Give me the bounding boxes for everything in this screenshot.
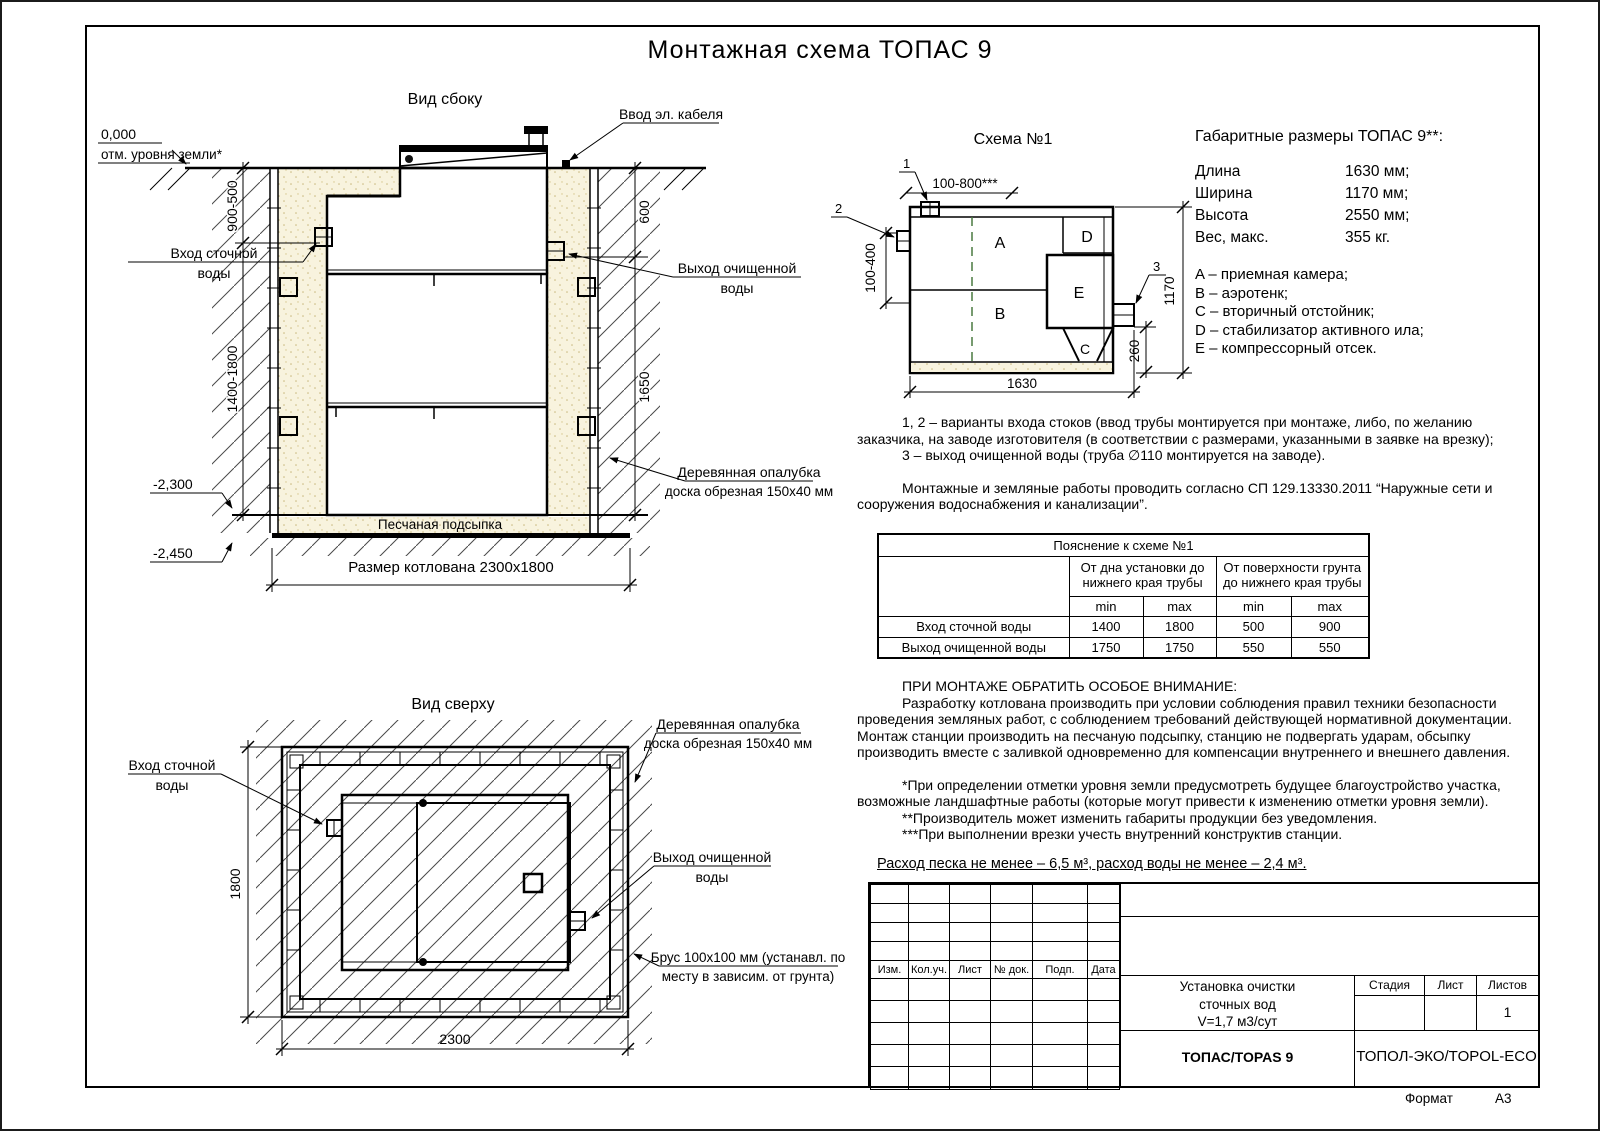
spec-row: Высота2550 мм; bbox=[1195, 207, 1409, 229]
company-name: ТОПОЛ-ЭКО/TOPOL-ECO bbox=[1355, 1031, 1538, 1087]
pit-size-label: Размер котлована 2300х1800 bbox=[348, 559, 553, 576]
cable-label: Ввод эл. кабеля bbox=[619, 106, 723, 122]
dim-2300: 2300 bbox=[439, 1031, 470, 1047]
spec-row: Вес, макс.355 кг. bbox=[1195, 229, 1409, 251]
dim-600: 600 bbox=[636, 200, 652, 224]
partition-thick bbox=[327, 274, 547, 407]
drawing-sheet: { "sheet": { "title": "Монтажная схема Т… bbox=[0, 0, 1600, 1131]
formwork-label-2: доска обрезная 150х40 мм bbox=[644, 736, 812, 751]
revision-header-row: Изм. Кол.уч. Лист № док. Подп. Дата bbox=[871, 961, 1120, 979]
hinge-dot bbox=[419, 958, 427, 966]
ground-hatch-bottom bbox=[250, 538, 650, 556]
outlet-label-2: воды bbox=[721, 280, 754, 296]
consumption-note: Расход песка не менее – 6,5 м³, расход в… bbox=[877, 856, 1306, 872]
sand-backfill-right bbox=[547, 168, 590, 515]
sand-bed-label: Песчаная подсыпка bbox=[378, 517, 503, 532]
stage-value bbox=[1355, 996, 1425, 1030]
chamber-c-label: C bbox=[1080, 341, 1090, 357]
attention-heading: ПРИ МОНТАЖЕ ОБРАТИТЬ ОСОБОЕ ВНИМАНИЕ: bbox=[857, 678, 1535, 695]
model-name: ТОПАС/TOPAS 9 bbox=[1121, 1031, 1355, 1087]
top-view: Вид сверху Вход сточной воды Деревянная … bbox=[128, 696, 845, 1056]
stage-table: Стадия Лист Листов 1 bbox=[1355, 976, 1538, 1030]
attention-body: Разработку котлована производить при усл… bbox=[857, 695, 1535, 761]
legend-item: B – аэротенк; bbox=[1195, 285, 1424, 304]
outlet-label-1: Выход очищенной bbox=[678, 260, 797, 276]
sheets-label: Листов bbox=[1477, 976, 1538, 995]
cable-leader bbox=[570, 123, 623, 160]
legend-item: A – приемная камера; bbox=[1195, 266, 1424, 285]
outlet-label-1: Выход очищенной bbox=[653, 849, 772, 865]
dim-1170: 1170 bbox=[1162, 276, 1177, 305]
table-group-1: От дна установки до нижнего края трубы bbox=[1069, 556, 1216, 596]
formwork-label-2: доска обрезная 150х40 мм bbox=[665, 484, 833, 499]
chamber-d-label: D bbox=[1081, 229, 1093, 246]
ground-level-label: отм. уровня земли* bbox=[101, 147, 223, 162]
revision-grid: Изм. Кол.уч. Лист № док. Подп. Дата bbox=[870, 884, 1120, 1090]
dim-900-500: 900-500 bbox=[224, 180, 240, 232]
chamber-legend: A – приемная камера; B – аэротенк; C – в… bbox=[1195, 266, 1424, 359]
schema-bottom-band bbox=[911, 363, 1112, 372]
ground-hatch-left bbox=[212, 168, 270, 533]
note-variants-12: 1, 2 – варианты входа стоков (ввод трубы… bbox=[857, 414, 1533, 447]
table-row: Вход сточной воды 1400 1800 500 900 bbox=[878, 616, 1369, 637]
schema-title: Схема №1 bbox=[974, 131, 1053, 148]
lid-top-band bbox=[400, 146, 547, 152]
stamp-empty-row bbox=[1121, 917, 1539, 976]
hinge-dot bbox=[419, 799, 427, 807]
chamber-b-label: B bbox=[995, 306, 1006, 323]
title-block: Изм. Кол.уч. Лист № док. Подп. Дата Уста… bbox=[868, 882, 1540, 1088]
product-title: Установка очистки сточных вод V=1,7 м3/с… bbox=[1121, 976, 1355, 1030]
explanation-table: Пояснение к схеме №1 От дна установки до… bbox=[877, 533, 1370, 659]
dim-260: 260 bbox=[1127, 340, 1142, 363]
top-view-title: Вид сверху bbox=[411, 696, 494, 713]
footnote-2: **Производитель может изменить габариты … bbox=[857, 810, 1535, 827]
table-row: Выход очищенной воды 1750 1750 550 550 bbox=[878, 637, 1369, 658]
level-2450-label: -2,450 bbox=[153, 545, 193, 561]
vent-cap bbox=[524, 126, 548, 134]
zero-mark-label: 0,000 bbox=[101, 126, 136, 142]
note-variant-3: 3 – выход очищенной воды (труба ∅110 мон… bbox=[857, 447, 1533, 464]
format-value: А3 bbox=[1495, 1091, 1512, 1106]
formwork-label-1: Деревянная опалубка bbox=[677, 464, 820, 480]
level-2450-arrow bbox=[222, 543, 232, 562]
legend-item: D – стабилизатор активного ила; bbox=[1195, 322, 1424, 341]
spec-row: Длина1630 мм; bbox=[1195, 163, 1409, 185]
lid-diagonal bbox=[400, 153, 547, 166]
marker2-leader bbox=[847, 217, 894, 237]
marker-1: 1 bbox=[903, 156, 910, 171]
stamp-right-section: Установка очистки сточных вод V=1,7 м3/с… bbox=[1119, 884, 1539, 1087]
specs-heading: Габаритные размеры ТОПАС 9**: bbox=[1195, 128, 1443, 146]
vent-stem bbox=[529, 132, 543, 146]
table-group-2: От поверхности грунта до нижнего края тр… bbox=[1216, 556, 1369, 596]
side-view: Вид сбоку 0,000 отм. уровня земли* 900-5… bbox=[98, 91, 833, 592]
formwork-label-1: Деревянная опалубка bbox=[656, 716, 799, 732]
side-view-title: Вид сбоку bbox=[408, 91, 483, 108]
lid-latch-icon bbox=[405, 155, 413, 163]
attention-block: ПРИ МОНТАЖЕ ОБРАТИТЬ ОСОБОЕ ВНИМАНИЕ: Ра… bbox=[857, 678, 1535, 843]
spec-row: Ширина1170 мм; bbox=[1195, 185, 1409, 207]
chamber-e-label: E bbox=[1074, 285, 1085, 302]
chamber-a-label: A bbox=[995, 235, 1006, 252]
footnote-3: ***При выполнении врезки учесть внутренн… bbox=[857, 826, 1535, 843]
footnote-1: *При определении отметки уровня земли пр… bbox=[857, 777, 1535, 810]
table-title: Пояснение к схеме №1 bbox=[878, 534, 1369, 556]
schema-1: Схема №1 1 2 3 100-800*** 100-400 260 11… bbox=[831, 131, 1192, 398]
dim-100-400: 100-400 bbox=[863, 243, 878, 293]
marker-3: 3 bbox=[1153, 259, 1160, 274]
partition-thin bbox=[327, 270, 547, 403]
sand-backfill-left bbox=[278, 168, 400, 515]
marker3-leader bbox=[1136, 275, 1149, 303]
inlet-label-1: Вход сточной bbox=[129, 757, 216, 773]
dim-1400-1800: 1400-1800 bbox=[224, 345, 240, 412]
sheet-label: Лист bbox=[1425, 976, 1477, 995]
format-label: Формат bbox=[1405, 1091, 1453, 1106]
dim-100-800: 100-800*** bbox=[932, 176, 998, 191]
beam-label-1: Брус 100х100 мм (устанавл. по bbox=[651, 950, 846, 965]
note-sp: Монтажные и земляные работы проводить со… bbox=[857, 480, 1533, 513]
stamp-empty-row bbox=[1121, 884, 1539, 917]
bed-bottom-band bbox=[272, 533, 630, 538]
outlet-label-2: воды bbox=[696, 869, 729, 885]
inlet-label-2: воды bbox=[156, 777, 189, 793]
level-2300-label: -2,300 bbox=[153, 476, 193, 492]
inlet-label-1: Вход сточной bbox=[171, 245, 258, 261]
beam-label-2: месту в зависим. от грунта) bbox=[662, 969, 834, 984]
inlet-label-2: воды bbox=[198, 265, 231, 281]
variant-notes: 1, 2 – варианты входа стоков (ввод трубы… bbox=[857, 414, 1533, 513]
tank-outline bbox=[327, 168, 547, 515]
partition-ticks bbox=[336, 274, 541, 419]
legend-item: E – компрессорный отсек. bbox=[1195, 340, 1424, 359]
legend-item: C – вторичный отстойник; bbox=[1195, 303, 1424, 322]
sheet-value bbox=[1425, 996, 1477, 1030]
table-corner bbox=[878, 556, 1069, 616]
dim-1630: 1630 bbox=[1007, 376, 1037, 391]
ground-hatch-ring bbox=[256, 720, 652, 1044]
specs-table: Длина1630 мм; Ширина1170 мм; Высота2550 … bbox=[1195, 163, 1409, 251]
cable-entry-point bbox=[562, 160, 570, 168]
stage-label: Стадия bbox=[1355, 976, 1425, 995]
sheets-value: 1 bbox=[1477, 996, 1538, 1030]
marker-2: 2 bbox=[835, 201, 842, 216]
dim-1650: 1650 bbox=[636, 371, 652, 402]
dim-1800: 1800 bbox=[227, 868, 243, 899]
marker1-leader bbox=[915, 172, 927, 200]
